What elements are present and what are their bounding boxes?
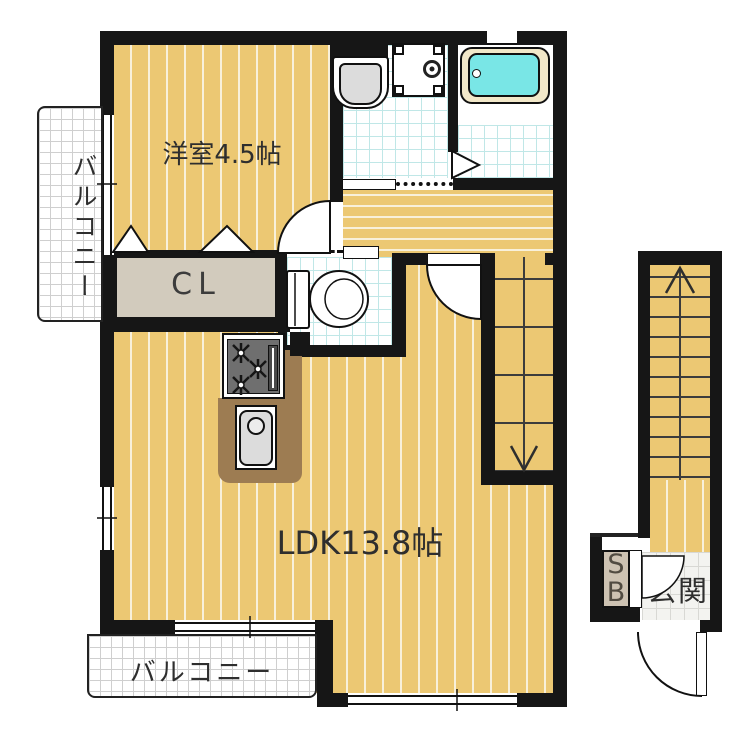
pan-corner: [394, 85, 404, 95]
under-bath-wall: [453, 178, 553, 190]
toilet-door-track: [287, 250, 343, 253]
stairs-left-wall: [481, 253, 495, 485]
shoe-box: S B: [602, 550, 630, 608]
pan-corner: [433, 45, 443, 55]
stairs-bottom-wall: [481, 471, 553, 485]
washbasin-bowl: [339, 63, 382, 105]
ldk-balcony-window: [175, 620, 315, 634]
pan-corner: [433, 85, 443, 95]
bathroom-window: [487, 31, 517, 45]
shoe-box-label-bottom: B: [607, 580, 626, 606]
closet-bottom-wall: [100, 318, 290, 332]
western-room-door-opening: [330, 202, 343, 253]
balcony-bottom-label: バルコニー: [89, 652, 315, 689]
toilet-door-leaf: [343, 246, 379, 259]
closet: CL: [114, 250, 278, 320]
kitchen-stub-wall: [290, 332, 310, 356]
entrance-bottom-wall-left: [590, 608, 640, 622]
stove-grill-slit: [272, 348, 274, 388]
stairs-down: [495, 253, 553, 471]
entry-door-leaf: [696, 632, 707, 696]
hall-bottom-wall: [392, 253, 427, 265]
washroom-sliding-door-leaf: [342, 179, 396, 190]
bathroom-floor-tiles: [458, 125, 553, 178]
entrance-label: 玄関: [640, 568, 716, 610]
stove-grill: [268, 345, 278, 391]
bathtub-drain-icon: [472, 69, 481, 78]
stairs-top-stub-wall: [545, 253, 553, 265]
balcony-left-label: バルコニー: [39, 143, 101, 313]
entrance-bottom-wall-right: [700, 620, 722, 632]
ldk-label: LDK13.8帖: [235, 518, 485, 564]
bottom-wall-right-b: [517, 693, 567, 707]
toilet-right-wall: [392, 253, 406, 357]
floor-plan: CL バルコニー バルコニー: [0, 0, 756, 743]
closet-top-wall: [114, 250, 278, 258]
pan-corner: [394, 45, 404, 55]
ldk-bottom-window: [348, 693, 517, 707]
bottom-wall-right-a: [317, 693, 348, 707]
door-arc-entry: [638, 632, 702, 696]
stairs-up: [650, 265, 710, 480]
balcony-left: バルコニー: [37, 106, 103, 322]
ldk-left-window: [100, 487, 114, 550]
washroom-door-track: [396, 182, 453, 186]
ldk-door-leaf: [427, 253, 481, 265]
kitchen-counter: [285, 350, 302, 398]
sink-drain-icon: [247, 417, 265, 435]
bath-divider-wall: [448, 45, 458, 152]
western-room-label: 洋室4.5帖: [114, 134, 330, 171]
stairs-landing-floor: [650, 480, 710, 552]
balcony-bottom: バルコニー: [87, 634, 317, 698]
entry-stairs-left-wall: [638, 251, 650, 538]
shoe-box-label-top: S: [607, 552, 624, 578]
right-wall: [553, 31, 567, 707]
closet-label: CL: [117, 267, 275, 302]
bottom-wall-left-a: [100, 620, 175, 634]
